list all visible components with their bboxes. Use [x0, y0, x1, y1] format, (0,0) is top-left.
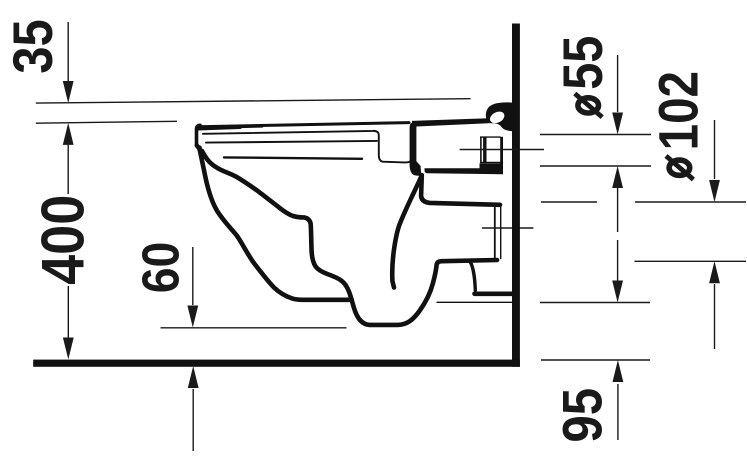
svg-text:60: 60 [132, 242, 190, 293]
svg-text:35: 35 [2, 19, 65, 74]
svg-text:95: 95 [552, 388, 615, 443]
svg-text:102: 102 [648, 71, 710, 150]
svg-text:55: 55 [552, 36, 615, 90]
svg-text:400: 400 [30, 195, 97, 285]
